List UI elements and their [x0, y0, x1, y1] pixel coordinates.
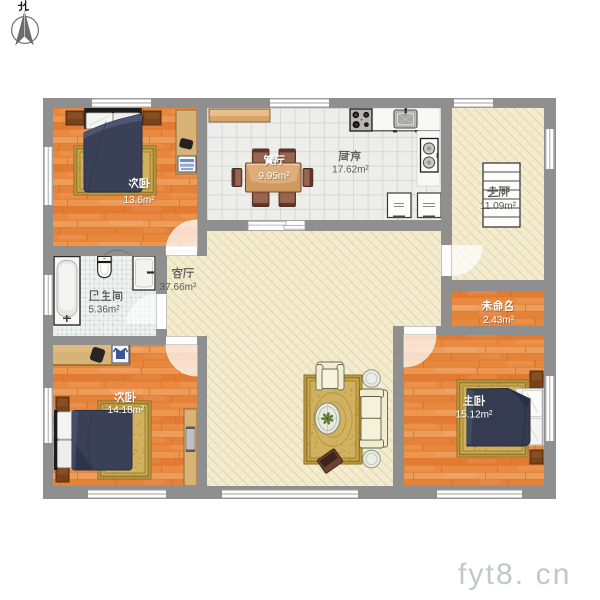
svg-text:fyt8. cn: fyt8. cn	[458, 558, 572, 591]
svg-text:9.95m²: 9.95m²	[258, 171, 290, 182]
svg-text:17.62m²: 17.62m²	[332, 164, 369, 175]
svg-text:37.66m²: 37.66m²	[160, 282, 197, 293]
svg-text:15.12m²: 15.12m²	[456, 409, 493, 420]
svg-text:5.36m²: 5.36m²	[88, 304, 120, 315]
svg-text:13.6m²: 13.6m²	[123, 195, 155, 206]
svg-text:2.43m²: 2.43m²	[483, 315, 515, 326]
svg-text:11.09m²: 11.09m²	[480, 201, 517, 212]
svg-text:14.18m²: 14.18m²	[108, 405, 145, 416]
